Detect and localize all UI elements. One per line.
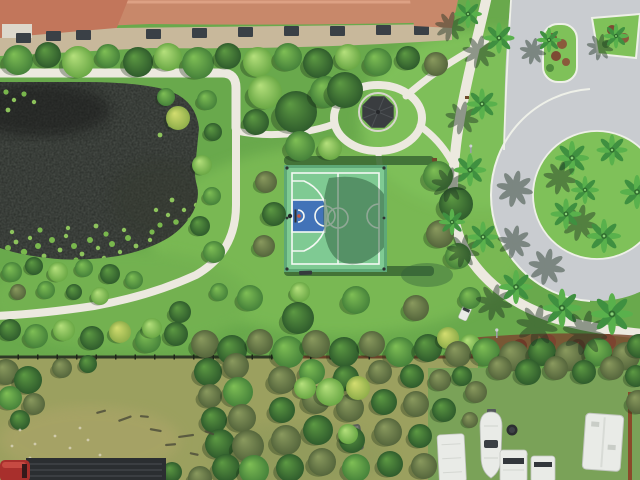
tree xyxy=(294,377,316,399)
boat xyxy=(480,409,502,478)
tree xyxy=(308,448,336,476)
tree xyxy=(318,136,342,160)
lily-pad xyxy=(103,231,108,236)
tree xyxy=(96,44,120,68)
field-speck xyxy=(87,439,90,442)
tree xyxy=(75,259,93,277)
tree xyxy=(125,271,143,289)
tree xyxy=(329,337,359,367)
tree xyxy=(285,131,315,161)
tree xyxy=(255,171,277,193)
palm-tree xyxy=(439,209,465,235)
palm-tree xyxy=(604,24,629,49)
lily-pad xyxy=(96,246,100,250)
tree xyxy=(445,341,471,367)
window xyxy=(146,29,161,39)
rv-trailer xyxy=(582,413,624,472)
tree xyxy=(374,418,402,446)
tree xyxy=(0,319,21,341)
tree xyxy=(169,301,191,323)
tree xyxy=(359,331,385,357)
lily-pad xyxy=(149,229,154,234)
tree xyxy=(262,202,286,226)
tree xyxy=(303,415,333,445)
lily-pad xyxy=(109,241,115,247)
tree xyxy=(411,453,437,479)
boat-windshield xyxy=(484,440,498,448)
tree xyxy=(396,46,420,70)
tree xyxy=(23,393,45,415)
tree xyxy=(197,90,217,110)
tree xyxy=(268,366,296,394)
tree-shadow-grass xyxy=(401,263,453,287)
tree xyxy=(198,384,222,408)
tree xyxy=(204,123,222,141)
tree xyxy=(237,285,263,311)
truck-windshield xyxy=(503,458,524,464)
lily-pad xyxy=(166,213,170,217)
tree xyxy=(194,358,222,386)
field-speck xyxy=(19,429,22,432)
tree xyxy=(488,356,512,380)
bench xyxy=(465,96,469,99)
lily-pad xyxy=(125,235,131,241)
lily-pad xyxy=(134,244,139,249)
window xyxy=(76,30,91,40)
hoop-pole xyxy=(288,214,292,218)
tree xyxy=(48,262,68,282)
tree xyxy=(228,404,256,432)
tree xyxy=(166,106,190,130)
lily-pad xyxy=(21,91,26,96)
tree xyxy=(544,356,568,380)
tree xyxy=(338,424,358,444)
palm-tree xyxy=(467,89,498,120)
tree xyxy=(80,326,104,350)
lily-pad xyxy=(94,224,99,229)
pickup-truck xyxy=(500,450,527,480)
window xyxy=(284,26,299,36)
tree xyxy=(215,43,241,69)
tree xyxy=(403,391,429,417)
tree xyxy=(462,412,478,428)
tree xyxy=(424,52,448,76)
field-speck xyxy=(69,447,72,450)
tree xyxy=(35,42,61,68)
palm-tree xyxy=(499,270,533,304)
tree xyxy=(52,358,72,378)
lily-pad xyxy=(80,252,85,257)
window xyxy=(46,31,61,41)
lily-pad xyxy=(6,108,11,113)
tree xyxy=(368,360,392,384)
tree xyxy=(182,47,214,79)
aerial-photo xyxy=(0,0,640,480)
cab-window xyxy=(22,464,27,478)
palm-tree xyxy=(537,28,562,53)
truck-windshield xyxy=(534,462,552,467)
window xyxy=(238,27,253,37)
gazebo-finial xyxy=(376,110,380,114)
lily-pad xyxy=(170,198,175,203)
lily-pad xyxy=(71,243,77,249)
tree xyxy=(400,364,424,388)
painted-key xyxy=(292,200,325,232)
tree xyxy=(62,46,94,78)
palm-tree xyxy=(484,23,515,54)
palm-tree xyxy=(591,293,633,335)
tree xyxy=(210,283,228,301)
tree xyxy=(269,397,295,423)
tree xyxy=(223,377,253,407)
tree xyxy=(290,282,310,302)
tree xyxy=(303,48,333,78)
lily-pad xyxy=(157,222,162,227)
tree xyxy=(25,257,43,275)
tree xyxy=(157,88,175,106)
utility-trailer xyxy=(437,434,466,480)
tree xyxy=(142,318,162,338)
tree xyxy=(37,281,55,299)
lily-pad xyxy=(3,89,8,94)
lily-pad xyxy=(158,133,163,138)
tree xyxy=(452,366,472,386)
gazebo xyxy=(359,93,397,131)
tree xyxy=(274,43,302,71)
tree xyxy=(302,330,330,358)
tree xyxy=(203,187,221,205)
lily-pad xyxy=(49,237,55,243)
lily-pad xyxy=(35,243,41,249)
window xyxy=(330,26,345,36)
semi-truck xyxy=(0,458,166,480)
aerial-photo-stage xyxy=(0,0,640,480)
tree xyxy=(3,45,33,75)
tree xyxy=(123,47,153,77)
palm-tree xyxy=(454,0,482,28)
tree xyxy=(2,262,22,282)
tree xyxy=(53,319,75,341)
tree xyxy=(429,369,451,391)
field-speck xyxy=(34,443,37,446)
window xyxy=(16,33,31,43)
tree xyxy=(243,47,273,77)
tree xyxy=(515,359,541,385)
tree xyxy=(271,425,301,455)
tree xyxy=(465,381,487,403)
tree xyxy=(243,109,269,135)
court-bench xyxy=(299,271,312,275)
tree xyxy=(247,329,273,355)
tree xyxy=(408,424,432,448)
truck-trailer xyxy=(26,458,166,480)
tree xyxy=(201,407,227,433)
tree xyxy=(192,155,212,175)
tree xyxy=(10,410,30,430)
palm-tree xyxy=(597,135,628,166)
lily-pad xyxy=(10,230,14,234)
basketball-court xyxy=(284,165,393,272)
lily-pad xyxy=(37,227,42,232)
field-speck xyxy=(79,427,82,430)
tree xyxy=(79,355,97,373)
backboard xyxy=(295,210,297,223)
lily-pad xyxy=(148,238,152,242)
lily-pad xyxy=(12,98,16,102)
tree xyxy=(203,241,225,263)
window xyxy=(192,28,207,38)
tree xyxy=(432,398,456,422)
lily-pad xyxy=(66,226,70,230)
lily-pad xyxy=(28,236,32,240)
tree xyxy=(164,322,188,346)
tree xyxy=(223,353,249,379)
tree xyxy=(91,287,109,305)
tree xyxy=(154,43,182,71)
tree xyxy=(385,337,415,367)
tree xyxy=(371,389,397,415)
palm-tree xyxy=(587,219,621,253)
pickup-truck-2 xyxy=(531,456,555,480)
tree xyxy=(272,336,304,368)
tree xyxy=(316,378,344,406)
tree xyxy=(66,284,82,300)
lily-pad xyxy=(173,219,179,225)
basketball-hoop xyxy=(297,214,301,218)
tree xyxy=(342,286,370,314)
tree xyxy=(282,302,314,334)
tree xyxy=(327,72,363,108)
tree xyxy=(572,360,596,384)
tree xyxy=(109,321,131,343)
lily-pad xyxy=(58,248,63,253)
tree xyxy=(100,264,120,284)
field-speck xyxy=(11,445,14,448)
lily-pad xyxy=(32,100,36,104)
tree xyxy=(403,295,429,321)
field-speck xyxy=(54,435,57,438)
tree xyxy=(377,451,403,477)
tree xyxy=(190,216,210,236)
palm-tree xyxy=(571,176,599,204)
lily-pad xyxy=(182,208,186,212)
lily-pad xyxy=(64,234,68,238)
palm-tree xyxy=(454,154,487,187)
tree xyxy=(346,376,370,400)
tree xyxy=(253,235,275,257)
lily-pad xyxy=(154,208,158,212)
tree xyxy=(24,324,48,348)
palm-tree xyxy=(551,199,582,230)
lily-pad xyxy=(14,240,19,245)
tree xyxy=(364,48,392,76)
bench xyxy=(432,158,437,162)
palm-tree xyxy=(468,222,499,253)
tree xyxy=(335,44,361,70)
field-speck xyxy=(99,454,102,457)
lily-pad xyxy=(118,250,122,254)
lily-pad xyxy=(122,228,126,232)
tree xyxy=(10,284,26,300)
window xyxy=(376,25,391,35)
tree xyxy=(600,356,624,380)
lily-pad xyxy=(87,237,93,243)
